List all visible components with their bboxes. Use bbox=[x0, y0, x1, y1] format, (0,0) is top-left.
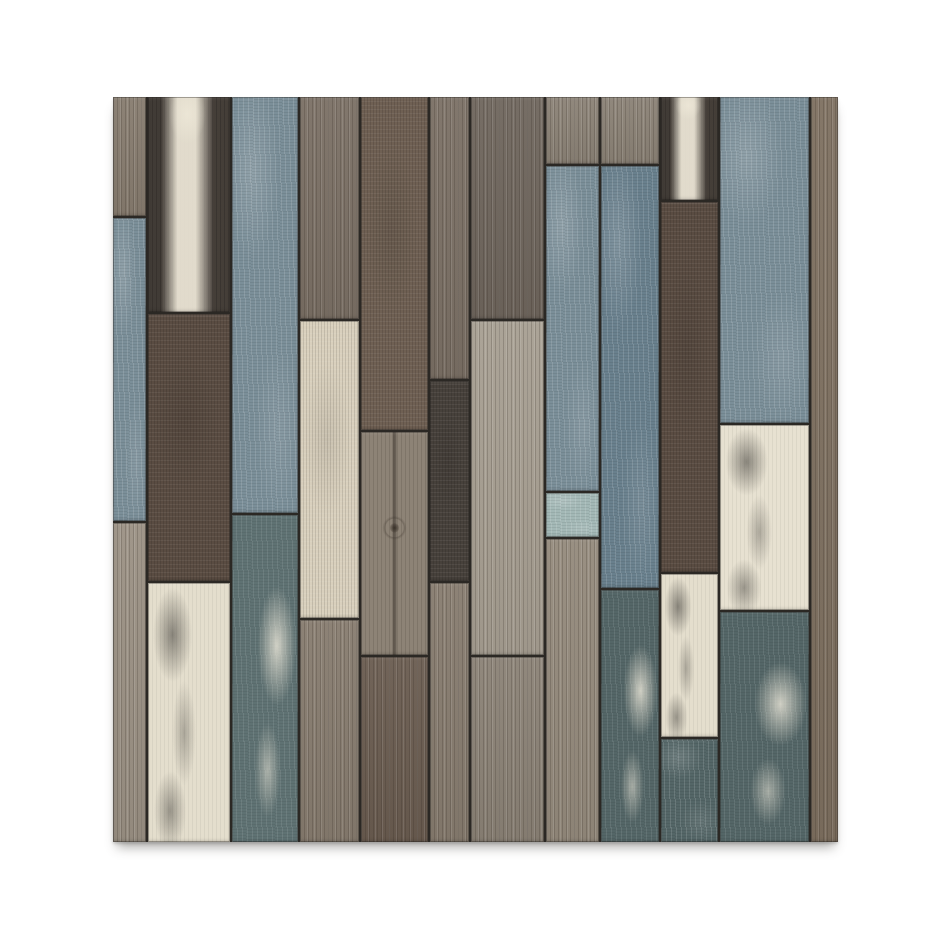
plank-segment-tealLight bbox=[546, 493, 599, 537]
plank-segment-blue2 bbox=[601, 166, 659, 588]
plank-column bbox=[113, 97, 146, 842]
plank-segment-brown2 bbox=[361, 97, 429, 430]
plank-segment-brown1 bbox=[148, 314, 230, 581]
plank-column bbox=[361, 97, 429, 842]
plank-segment-woodGrayDark bbox=[471, 97, 544, 319]
plank-segment-darkStreak bbox=[661, 97, 717, 200]
plank-segment-woodGrain2 bbox=[546, 539, 599, 842]
plank-column bbox=[471, 97, 544, 842]
plank-segment-woodGray bbox=[546, 97, 599, 164]
plank-segment-wood3 bbox=[300, 97, 358, 319]
wood-panel-image bbox=[113, 97, 838, 842]
plank-segment-woodBrown bbox=[811, 97, 838, 842]
plank-column bbox=[430, 97, 469, 842]
plank-segment-tealDark bbox=[661, 739, 717, 842]
plank-column bbox=[601, 97, 659, 842]
plank-segment-tealDark bbox=[601, 590, 659, 842]
plank-column bbox=[546, 97, 599, 842]
plank-column bbox=[148, 97, 230, 842]
plank-segment-blue1 bbox=[232, 97, 298, 513]
plank-segment-darkStreak bbox=[148, 97, 230, 312]
plank-segment-woodGray bbox=[601, 97, 659, 164]
plank-segment-wood1 bbox=[113, 523, 146, 842]
plank-segment-wood2 bbox=[300, 620, 358, 842]
plank-column bbox=[720, 97, 809, 842]
plank-segment-brown1 bbox=[661, 202, 717, 572]
plank-segment-blue1 bbox=[546, 166, 599, 491]
product-photo bbox=[0, 0, 936, 936]
plank-segment-wood2 bbox=[430, 583, 469, 842]
plank-segment-blue1 bbox=[720, 97, 809, 423]
plank-segment-cream1 bbox=[300, 321, 358, 617]
plank-column bbox=[661, 97, 717, 842]
plank-segment-tealWhite bbox=[232, 515, 298, 842]
plank-segment-creamLight bbox=[720, 425, 809, 610]
plank-segment-creamBlotch bbox=[148, 583, 230, 842]
plank-segment-woodSilver bbox=[471, 321, 544, 654]
plank-segment-brown3 bbox=[361, 657, 429, 842]
plank-segment-woodKnot bbox=[361, 432, 429, 654]
plank-segment-tealDark bbox=[720, 612, 809, 842]
plank-column bbox=[232, 97, 298, 842]
plank-segment-blue1 bbox=[113, 218, 146, 522]
plank-segment-wood3 bbox=[430, 97, 469, 379]
plank-segment-creamBlotch bbox=[661, 574, 717, 737]
plank-column bbox=[811, 97, 838, 842]
plank-segment-woodGray bbox=[471, 657, 544, 842]
plank-segment-charcoal bbox=[430, 381, 469, 581]
plank-column bbox=[300, 97, 358, 842]
plank-segment-wood2 bbox=[113, 97, 146, 216]
